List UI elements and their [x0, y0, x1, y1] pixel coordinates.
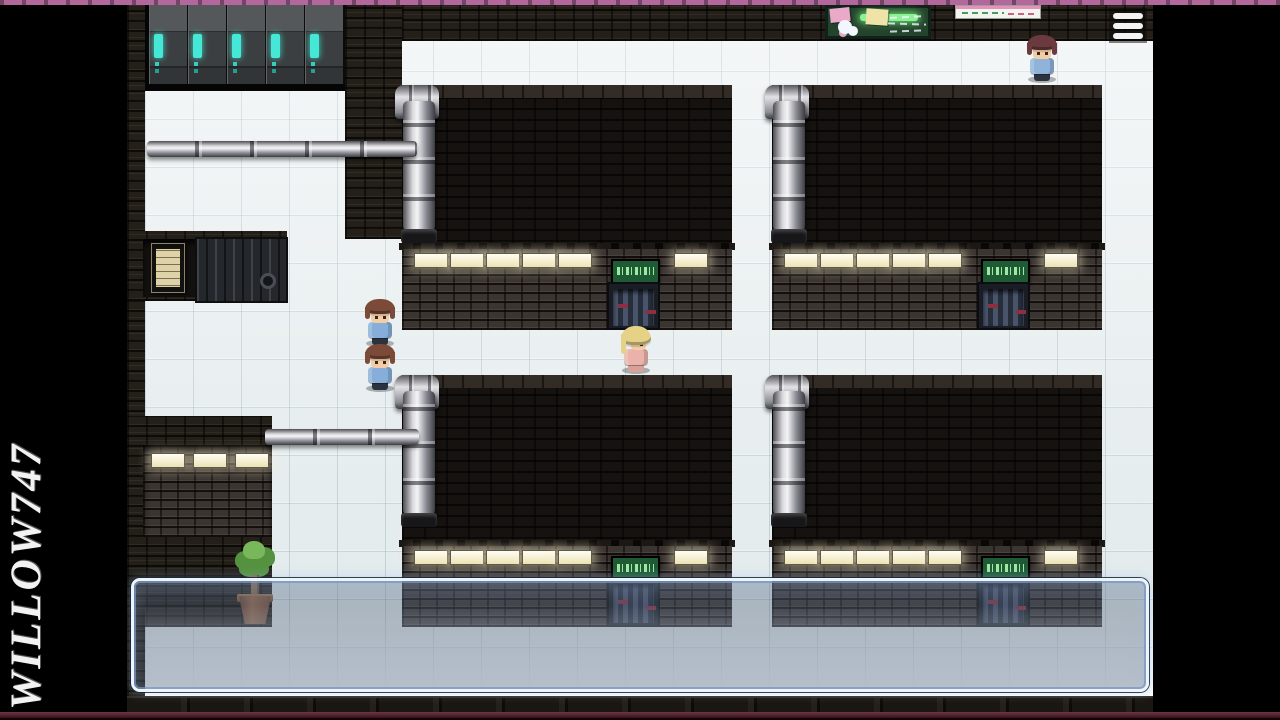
ceiling-lamp-icon: [856, 253, 890, 268]
ceiling-lamp-icon: [1044, 550, 1078, 565]
sprite-shirt: [368, 322, 392, 338]
ceiling-lamp-icon: [892, 253, 926, 268]
ceiling-lamp-icon: [414, 253, 448, 268]
brick-column: [345, 5, 402, 239]
vertical-pipe: [403, 391, 435, 515]
hamburger-menu-icon: [1113, 23, 1143, 29]
valve-wheel-icon: [260, 273, 276, 289]
npc-blonde[interactable]: [619, 326, 653, 374]
ceiling-lamp-icon: [522, 550, 556, 565]
pipe-open-end: [771, 229, 807, 243]
whiteboard-poster: [955, 5, 1041, 19]
rack-status-light-icon: [271, 34, 280, 58]
sprite-shirt: [1030, 58, 1054, 74]
rack-status-light-icon: [232, 34, 241, 58]
ceiling-lamp-icon: [784, 253, 818, 268]
rack-led-icon: [155, 62, 159, 66]
sprite-shirt: [624, 349, 648, 365]
sprite-hair: [390, 307, 395, 319]
chalk-line: [888, 22, 926, 25]
sign-glyphs: [987, 564, 1024, 572]
ceiling-lamp-icon: [928, 253, 962, 268]
roof-cap: [402, 85, 732, 98]
bottom-tile-row: [127, 696, 1153, 712]
top-accent-stripe: [0, 0, 1280, 5]
sprite-hair: [1027, 43, 1032, 55]
ceiling-lamp-icon: [892, 550, 926, 565]
ceiling-lamp-icon: [193, 453, 227, 468]
pipe-open-end: [401, 229, 437, 243]
pipe-open-end: [771, 513, 807, 527]
roof-cap: [402, 375, 732, 388]
ceiling-lamp-icon: [486, 550, 520, 565]
green-bulletin-board[interactable]: [825, 5, 931, 39]
rack-led-icon: [311, 62, 315, 66]
sprite-eyes: [1037, 52, 1040, 55]
hamburger-menu-icon: [1113, 33, 1143, 39]
plant-leaf: [243, 541, 265, 559]
npc-dark-red-hair[interactable]: [1025, 35, 1059, 83]
roof-cap: [772, 85, 1102, 98]
vertical-pipe: [403, 101, 435, 231]
ceiling-lamp-icon: [450, 253, 484, 268]
horizontal-pipe: [147, 141, 417, 157]
door-red-marks: [618, 304, 628, 308]
game-viewport: [127, 5, 1153, 712]
rack-status-light-icon: [193, 34, 202, 58]
sign-glyphs: [617, 267, 654, 275]
ceiling-lamp-icon: [151, 453, 185, 468]
ceiling-lamp-icon: [450, 550, 484, 565]
letterbox-right: [1153, 0, 1280, 720]
poster-scribble-green: [962, 12, 1004, 14]
server-room: [145, 5, 347, 91]
server-rack[interactable]: [188, 5, 228, 84]
vertical-pipe: [773, 391, 805, 515]
server-rack[interactable]: [149, 5, 189, 84]
building-top-left: [402, 85, 732, 330]
sprite-eyes: [375, 361, 378, 364]
rack-status-light-icon: [310, 34, 319, 58]
ceiling-lamp-icon: [674, 253, 708, 268]
ceiling-lamp-icon: [856, 550, 890, 565]
ceiling-lamp-icon: [820, 253, 854, 268]
ceiling-lamp-icon: [674, 550, 708, 565]
ceiling-lamp-icon: [558, 253, 592, 268]
poster-stripe: [956, 6, 1040, 9]
ceiling-lamp-icon: [486, 253, 520, 268]
rack-led-icon: [272, 62, 276, 66]
ceiling-lamp-icon: [522, 253, 556, 268]
message-window[interactable]: [131, 578, 1149, 692]
ceiling-lamp-icon: [1044, 253, 1078, 268]
sprite-eyes: [375, 316, 378, 319]
left-wall-structure: [127, 231, 287, 301]
rack-led-icon: [194, 62, 198, 66]
building-wall: [402, 249, 732, 330]
door-sign: [611, 259, 660, 284]
chalk-flower-doodle-icon: [838, 20, 852, 34]
vertical-pipe: [773, 101, 805, 231]
watermark-text: WILLOW747: [2, 424, 54, 710]
roof-cap: [772, 375, 1102, 388]
horizontal-pipe: [265, 429, 419, 445]
server-rack[interactable]: [227, 5, 267, 84]
board-note-yellow: [865, 8, 888, 25]
sign-glyphs: [987, 267, 1024, 275]
security-door[interactable]: [607, 282, 660, 330]
building-top-right: [772, 85, 1102, 330]
sprite-hair: [390, 352, 395, 364]
npc-brown-hair-2[interactable]: [363, 344, 397, 392]
security-door[interactable]: [977, 282, 1030, 330]
server-rack[interactable]: [266, 5, 306, 84]
ceiling-lamp-icon: [558, 550, 592, 565]
menu-button[interactable]: [1109, 8, 1147, 43]
sprite-shirt: [368, 367, 392, 383]
ceiling-lamp-icon: [820, 550, 854, 565]
storage-wall-recess: [143, 445, 272, 537]
sprite-hair: [365, 307, 370, 319]
hamburger-menu-icon: [1113, 13, 1143, 19]
paper-notice[interactable]: [151, 243, 185, 293]
game-screen: WILLOW747: [0, 0, 1280, 720]
poster-scribble-pink: [1008, 13, 1036, 15]
pipe-open-end: [401, 513, 437, 527]
ceiling-lamp-icon: [414, 550, 448, 565]
ceiling-lamp-icon: [235, 453, 269, 468]
sprite-hair: [365, 352, 370, 364]
door-red-marks: [988, 304, 998, 308]
rack-status-light-icon: [154, 34, 163, 58]
ceiling-lamp-icon: [784, 550, 818, 565]
ceiling-lamp-icon: [928, 550, 962, 565]
rack-led-icon: [233, 62, 237, 66]
metal-panel-door[interactable]: [195, 237, 288, 303]
npc-brown-hair-1[interactable]: [363, 299, 397, 347]
sign-glyphs: [617, 564, 654, 572]
door-sign: [981, 259, 1030, 284]
chalk-line: [890, 29, 924, 32]
sprite-hair: [621, 334, 626, 354]
server-rack[interactable]: [305, 5, 345, 84]
building-wall: [772, 249, 1102, 330]
sprite-hair: [1052, 43, 1057, 55]
